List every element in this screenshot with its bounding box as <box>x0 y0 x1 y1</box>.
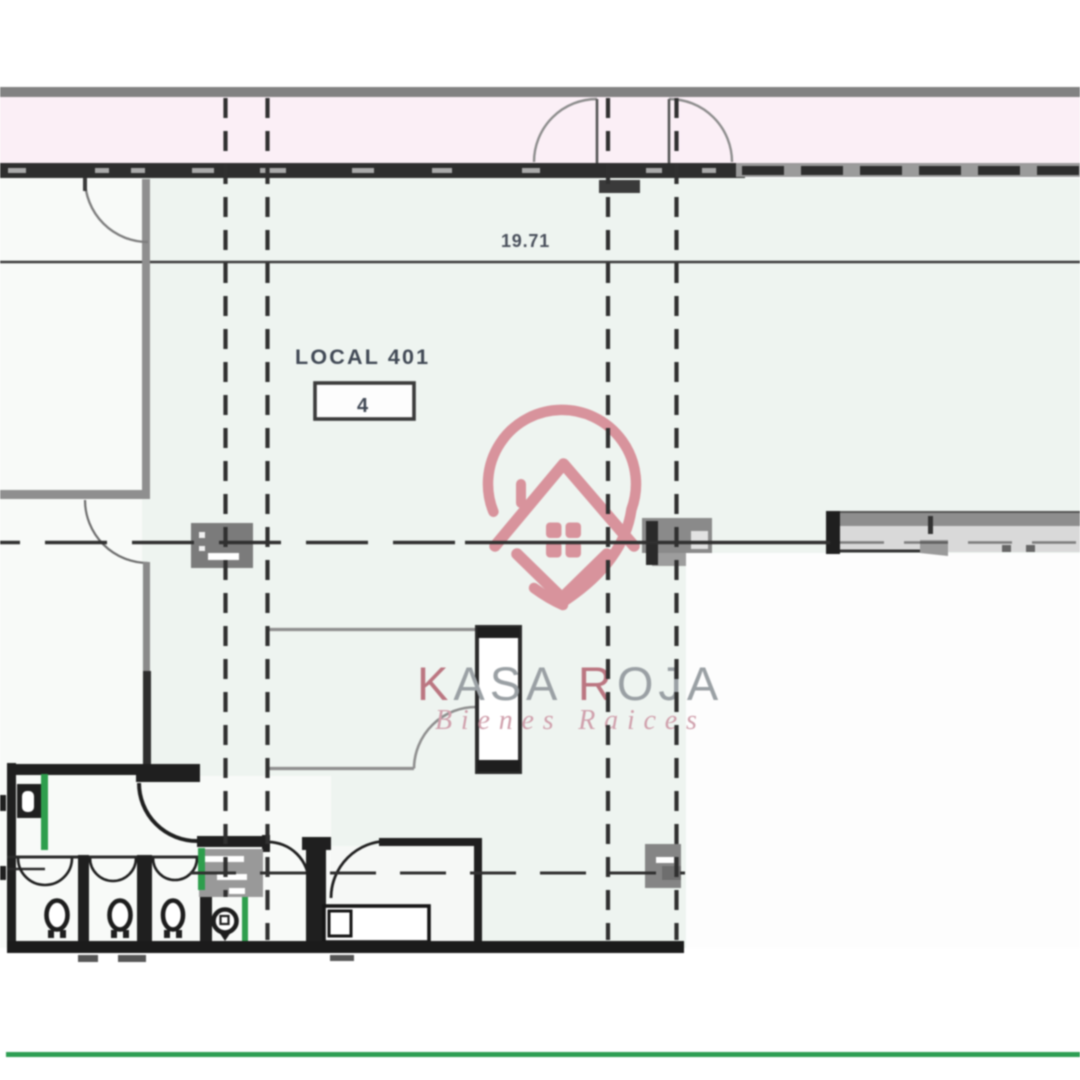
svg-text:LOCAL 401: LOCAL 401 <box>295 345 430 369</box>
svg-text:4: 4 <box>357 395 369 417</box>
svg-text:Bienes Raices: Bienes Raices <box>435 705 706 736</box>
svg-text:19.71: 19.71 <box>501 231 550 251</box>
